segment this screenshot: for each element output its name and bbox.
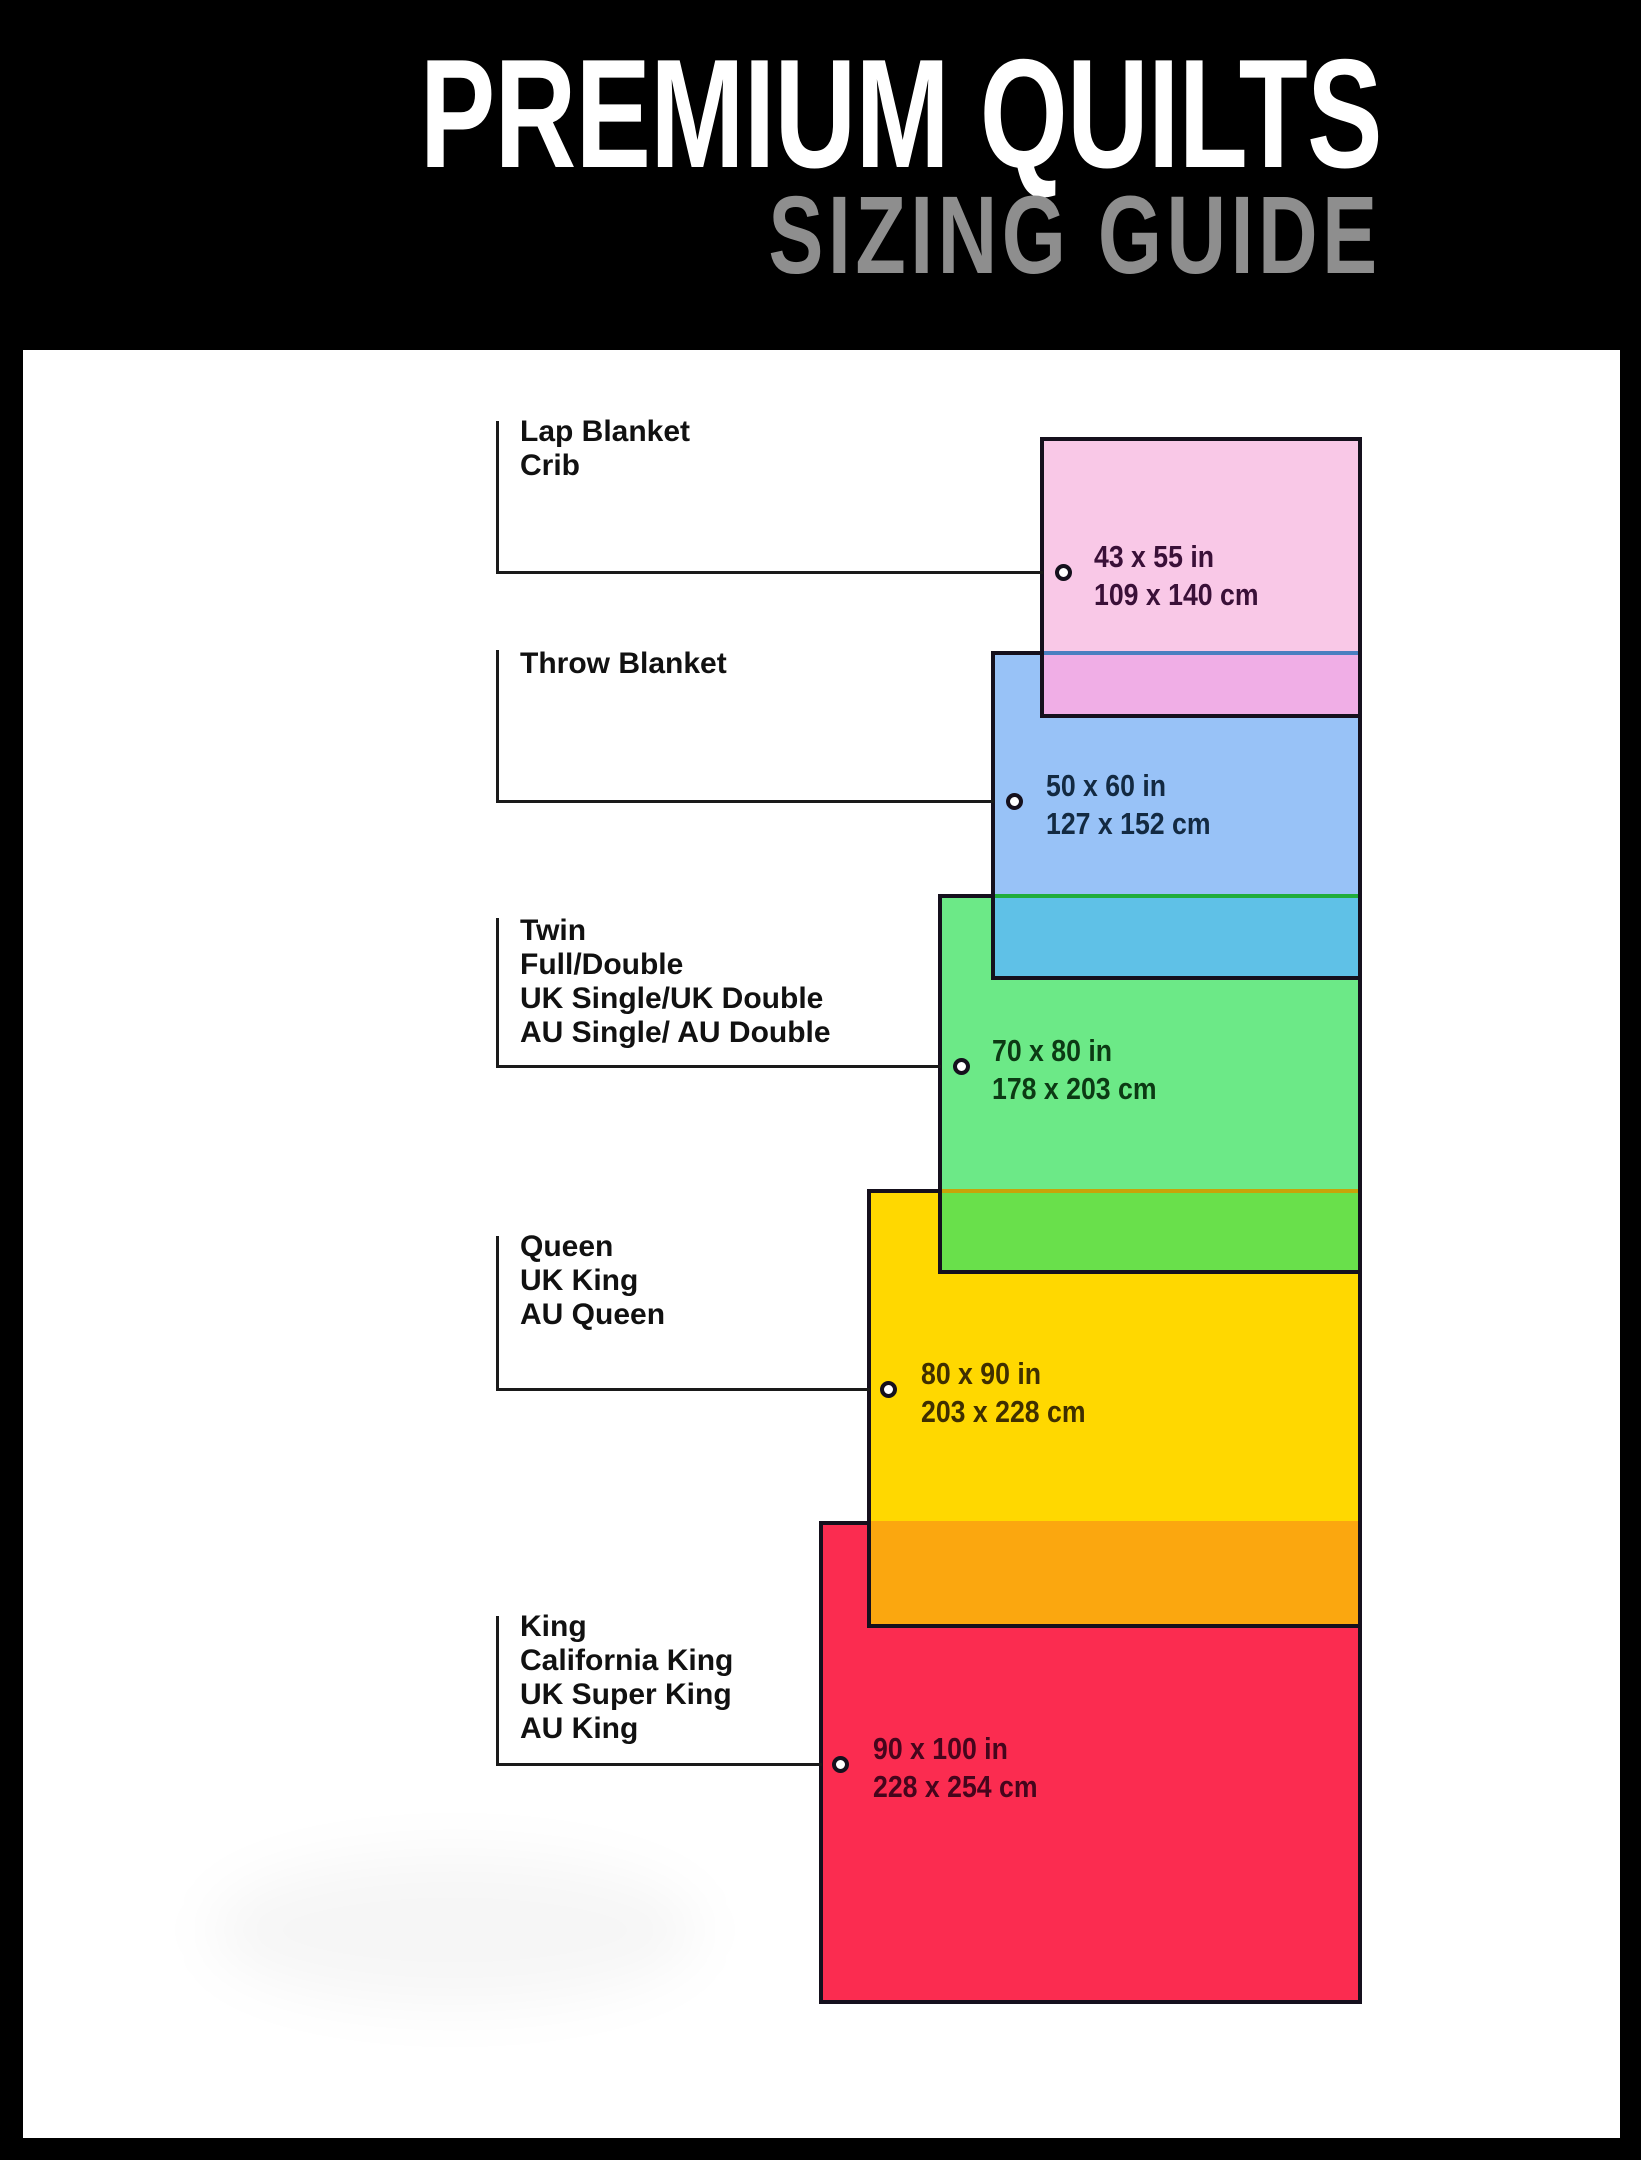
- frame-bottom: [0, 2138, 1641, 2160]
- dimension-cm: 203 x 228 cm: [921, 1393, 1086, 1431]
- label-line: AU Single/ AU Double: [520, 1016, 831, 1050]
- overlap-queen-over-king: [871, 1521, 1358, 1624]
- label-line: UK Single/UK Double: [520, 982, 831, 1016]
- dimensions-twin: 70 x 80 in 178 x 203 cm: [992, 1032, 1157, 1108]
- overlap-throw-over-twin: [995, 894, 1358, 976]
- connector-dot-crib: [1055, 564, 1072, 581]
- dimension-inches: 80 x 90 in: [921, 1355, 1086, 1393]
- connector-hline-king: [497, 1763, 822, 1766]
- label-line: UK Super King: [520, 1678, 733, 1712]
- label-line: UK King: [520, 1264, 665, 1298]
- connector-dot-king: [832, 1756, 849, 1773]
- connector-hline-throw: [497, 800, 994, 803]
- dimension-cm: 228 x 254 cm: [873, 1768, 1038, 1806]
- dimension-inches: 43 x 55 in: [1094, 538, 1259, 576]
- label-line: Queen: [520, 1230, 665, 1264]
- label-line: AU Queen: [520, 1298, 665, 1332]
- dimension-cm: 178 x 203 cm: [992, 1070, 1157, 1108]
- dimension-inches: 90 x 100 in: [873, 1730, 1038, 1768]
- label-line: King: [520, 1610, 733, 1644]
- label-crib: Lap Blanket Crib: [520, 415, 690, 483]
- dimension-cm: 127 x 152 cm: [1046, 805, 1211, 843]
- overlap-crib-over-throw: [1044, 651, 1358, 714]
- overlap-twin-over-queen: [942, 1189, 1358, 1270]
- frame-left: [0, 0, 23, 2160]
- label-throw: Throw Blanket: [520, 647, 727, 681]
- dimension-inches: 70 x 80 in: [992, 1032, 1157, 1070]
- connector-dot-twin: [953, 1058, 970, 1075]
- connector-hline-queen: [497, 1388, 870, 1391]
- connector-vline-crib: [496, 421, 499, 574]
- label-line: AU King: [520, 1712, 733, 1746]
- label-king: King California King UK Super King AU Ki…: [520, 1610, 733, 1746]
- connector-vline-throw: [496, 650, 499, 803]
- sizing-guide-infographic: PREMIUM QUILTS SIZING GUIDE Lap Blanket …: [0, 0, 1641, 2160]
- dimensions-queen: 80 x 90 in 203 x 228 cm: [921, 1355, 1086, 1431]
- frame-right: [1620, 0, 1641, 2160]
- connector-hline-twin: [497, 1065, 941, 1068]
- dimension-cm: 109 x 140 cm: [1094, 576, 1259, 614]
- dimensions-king: 90 x 100 in 228 x 254 cm: [873, 1730, 1038, 1806]
- connector-vline-king: [496, 1616, 499, 1766]
- label-line: Lap Blanket: [520, 415, 690, 449]
- background-smudge: [210, 1855, 700, 2005]
- connector-vline-queen: [496, 1236, 499, 1391]
- connector-dot-queen: [880, 1381, 897, 1398]
- label-line: Throw Blanket: [520, 647, 727, 681]
- page-title: PREMIUM QUILTS: [420, 36, 1382, 191]
- label-line: Twin: [520, 914, 831, 948]
- connector-dot-throw: [1006, 793, 1023, 810]
- header-band: PREMIUM QUILTS SIZING GUIDE: [0, 0, 1641, 350]
- dimensions-crib: 43 x 55 in 109 x 140 cm: [1094, 538, 1259, 614]
- label-queen: Queen UK King AU Queen: [520, 1230, 665, 1332]
- label-line: Full/Double: [520, 948, 831, 982]
- dimension-inches: 50 x 60 in: [1046, 767, 1211, 805]
- connector-hline-crib: [497, 571, 1043, 574]
- label-line: California King: [520, 1644, 733, 1678]
- label-twin: Twin Full/Double UK Single/UK Double AU …: [520, 914, 831, 1050]
- page-subtitle: SIZING GUIDE: [769, 181, 1382, 291]
- label-line: Crib: [520, 449, 690, 483]
- dimensions-throw: 50 x 60 in 127 x 152 cm: [1046, 767, 1211, 843]
- connector-vline-twin: [496, 918, 499, 1068]
